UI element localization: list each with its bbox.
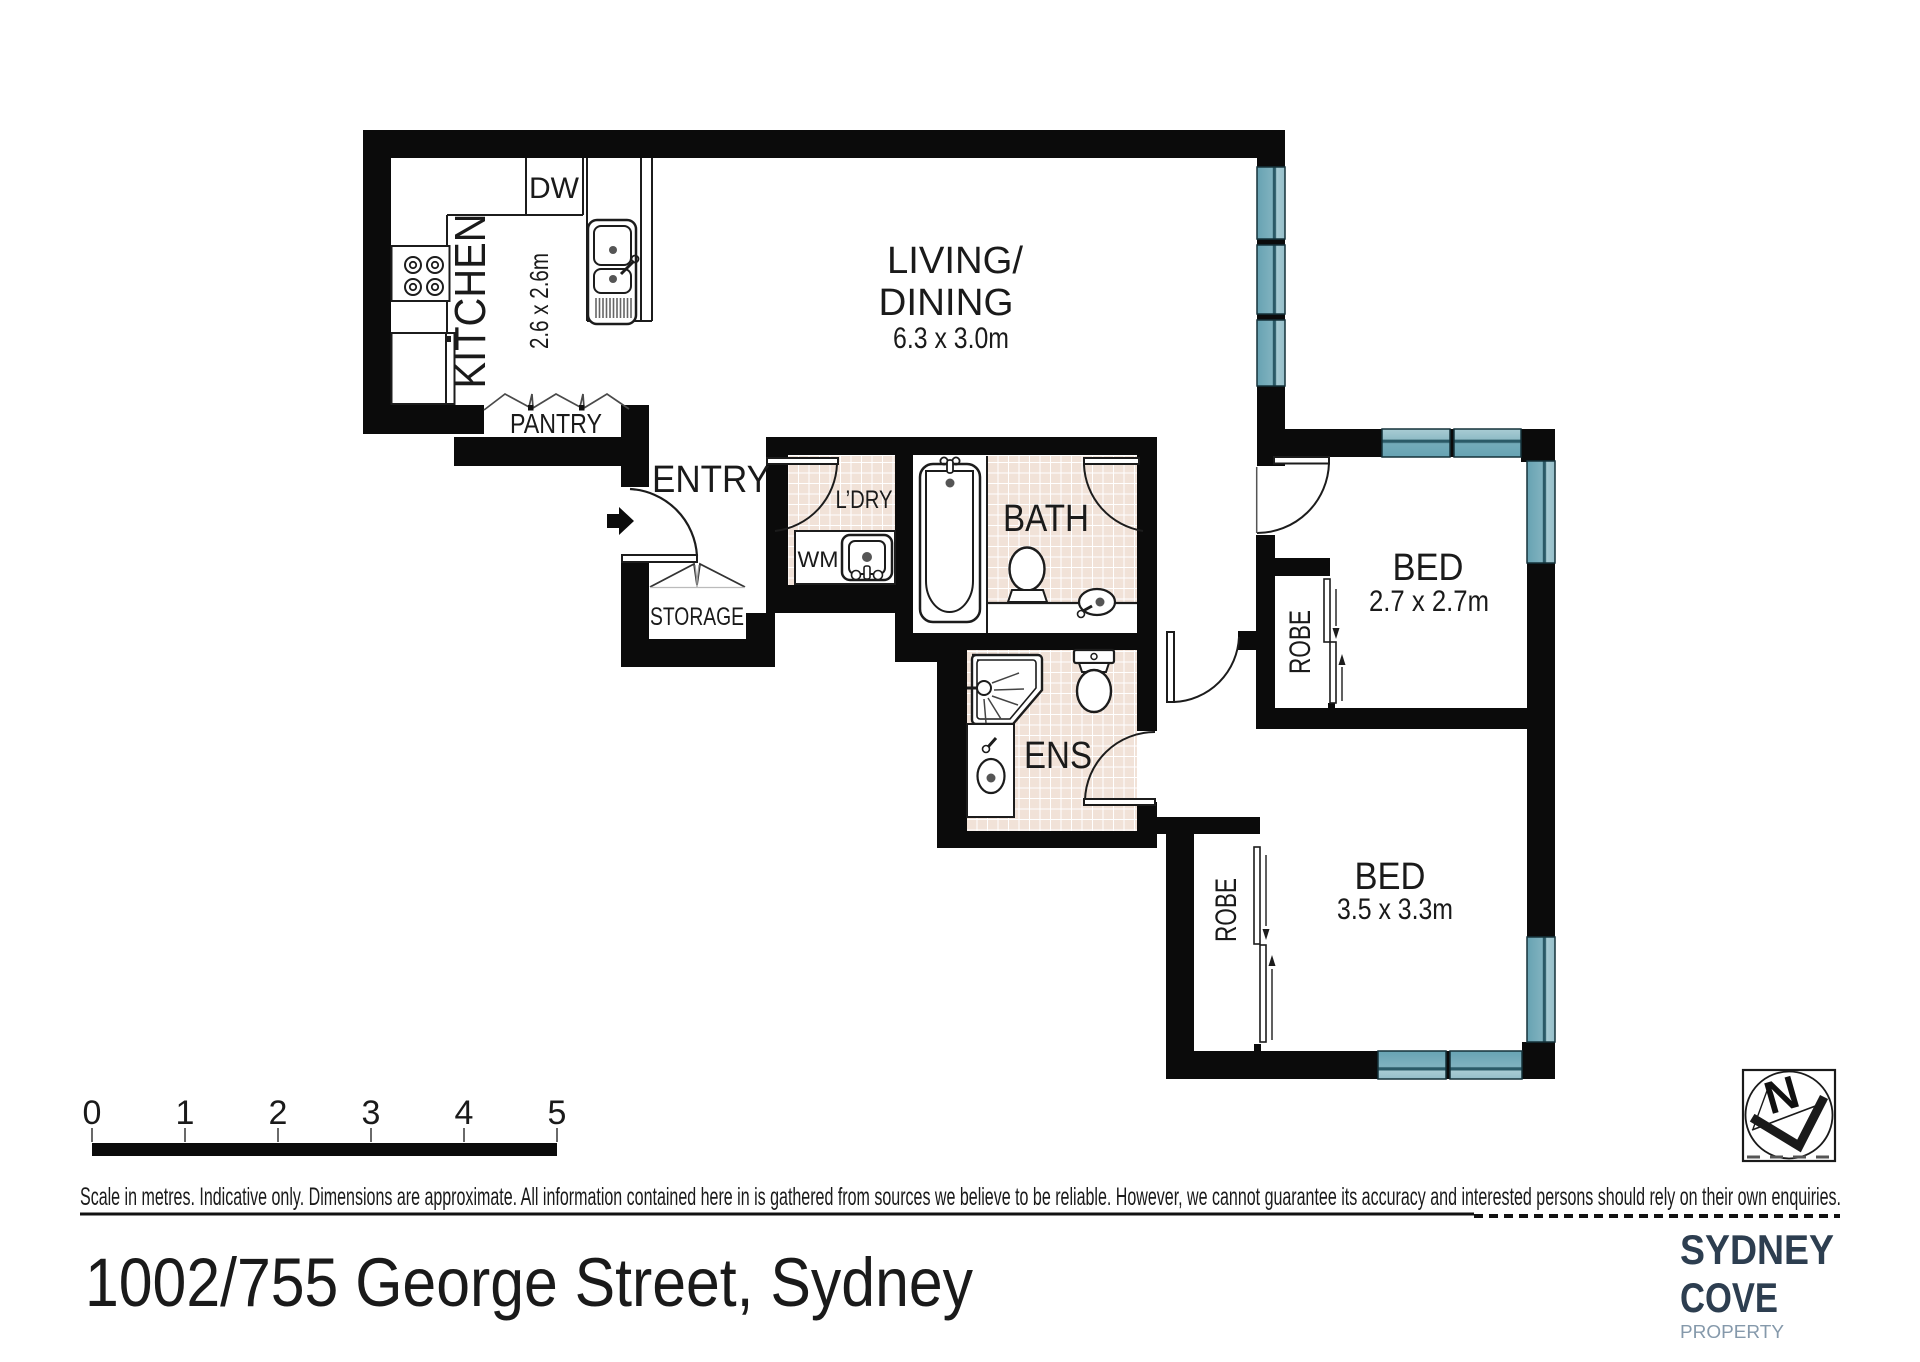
svg-text:2.7 x 2.7m: 2.7 x 2.7m (1369, 585, 1489, 618)
svg-text:SYDNEY: SYDNEY (1680, 1226, 1834, 1273)
svg-text:5: 5 (548, 1094, 567, 1132)
svg-text:4: 4 (455, 1094, 474, 1132)
svg-text:DW: DW (529, 172, 580, 205)
svg-text:6.3 x 3.0m: 6.3 x 3.0m (893, 322, 1009, 355)
svg-text:1: 1 (176, 1094, 195, 1132)
svg-text:3.5 x 3.3m: 3.5 x 3.3m (1337, 893, 1453, 926)
svg-text:ROBE: ROBE (1210, 878, 1243, 942)
svg-text:LIVING/: LIVING/ (887, 240, 1023, 282)
svg-text:L’DRY: L’DRY (836, 486, 893, 514)
svg-text:PROPERTY: PROPERTY (1680, 1322, 1784, 1342)
svg-text:BED: BED (1355, 856, 1426, 898)
svg-text:DINING: DINING (879, 282, 1014, 324)
svg-text:KITCHEN: KITCHEN (446, 214, 495, 389)
svg-text:3: 3 (362, 1094, 381, 1132)
svg-text:Scale in metres. Indicative on: Scale in metres. Indicative only. Dimens… (80, 1183, 1841, 1211)
svg-text:BED: BED (1393, 547, 1464, 589)
svg-text:2.6 x 2.6m: 2.6 x 2.6m (524, 253, 554, 349)
svg-text:ENS: ENS (1024, 735, 1092, 777)
svg-text:WM: WM (798, 547, 839, 572)
svg-text:0: 0 (83, 1094, 102, 1132)
svg-text:PANTRY: PANTRY (510, 408, 602, 439)
svg-text:STORAGE: STORAGE (650, 603, 744, 631)
svg-text:1002/755 George Street, Sydney: 1002/755 George Street, Sydney (85, 1244, 973, 1321)
svg-text:ENTRY: ENTRY (652, 459, 770, 501)
svg-text:ROBE: ROBE (1284, 610, 1317, 674)
svg-text:2: 2 (269, 1094, 288, 1132)
svg-text:COVE: COVE (1680, 1274, 1778, 1321)
svg-text:BATH: BATH (1003, 498, 1089, 540)
